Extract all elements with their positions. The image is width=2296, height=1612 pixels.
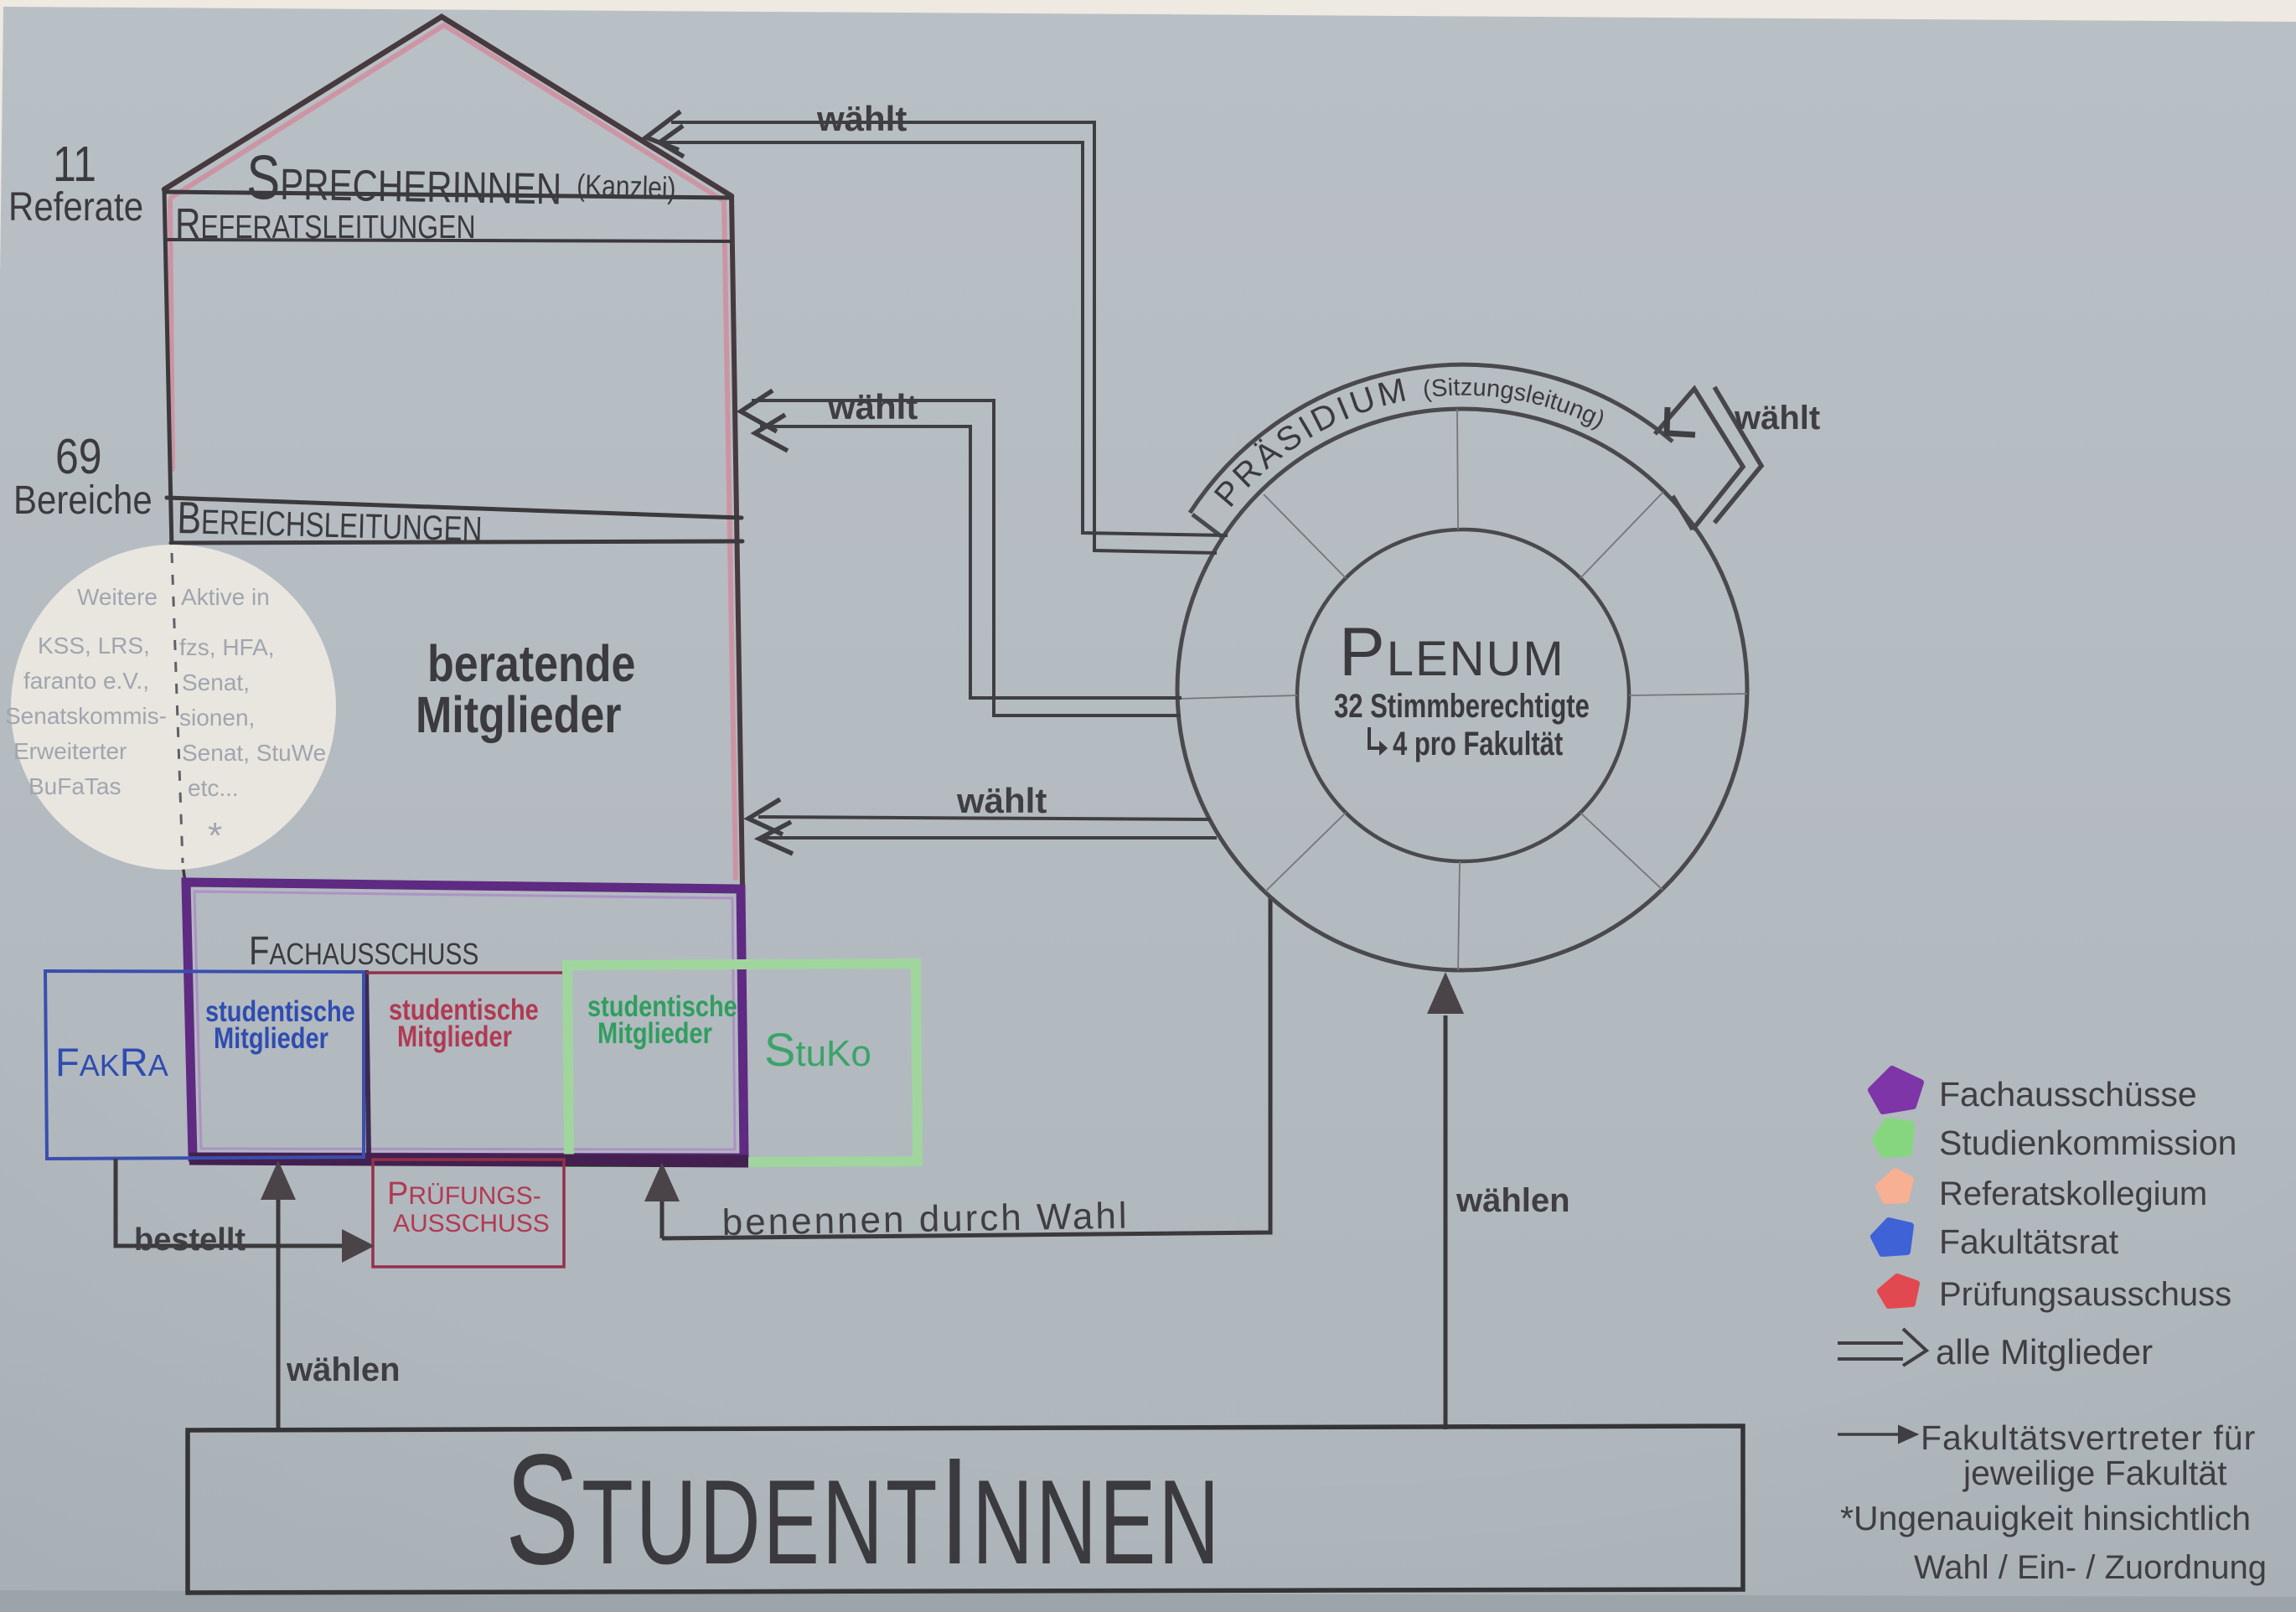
svg-text:fzs, HFA,: fzs, HFA, bbox=[179, 634, 275, 660]
svg-text:Studienkommission: Studienkommission bbox=[1939, 1124, 2237, 1162]
svg-text:Aktive in: Aktive in bbox=[181, 584, 270, 610]
svg-text:wählt: wählt bbox=[827, 387, 918, 426]
svg-text:Mitglieder: Mitglieder bbox=[397, 1020, 512, 1052]
svg-text:Weitere: Weitere bbox=[77, 584, 158, 610]
svg-text:Fakultätsrat: Fakultätsrat bbox=[1939, 1222, 2119, 1261]
svg-text:wählen: wählen bbox=[1456, 1182, 1570, 1219]
svg-text:BuFaTas: BuFaTas bbox=[28, 773, 122, 799]
svg-text:wählen: wählen bbox=[286, 1351, 401, 1388]
svg-text:AUSSCHUSS: AUSSCHUSS bbox=[393, 1210, 550, 1237]
svg-text:PRÜFUNGS-: PRÜFUNGS- bbox=[387, 1176, 541, 1212]
svg-text:Erweiterter: Erweiterter bbox=[13, 738, 127, 764]
svg-text:Prüfungsausschuss: Prüfungsausschuss bbox=[1939, 1276, 2231, 1313]
svg-text:Referate: Referate bbox=[8, 183, 143, 229]
svg-text:Mitglieder: Mitglieder bbox=[214, 1021, 328, 1054]
svg-text:wählt: wählt bbox=[1734, 400, 1820, 437]
svg-text:faranto e.V.,: faranto e.V., bbox=[23, 668, 149, 694]
svg-text:beratende: beratende bbox=[427, 636, 635, 693]
svg-text:*: * bbox=[208, 815, 222, 856]
svg-text:etc...: etc... bbox=[188, 775, 239, 801]
svg-text:Senat,: Senat, bbox=[182, 669, 250, 695]
svg-text:32 Stimmberechtigte: 32 Stimmberechtigte bbox=[1334, 687, 1590, 725]
svg-text:jeweilige Fakultät: jeweilige Fakultät bbox=[1962, 1454, 2227, 1492]
svg-text:alle Mitglieder: alle Mitglieder bbox=[1936, 1332, 2153, 1372]
svg-text:KSS, LRS,: KSS, LRS, bbox=[38, 633, 150, 659]
svg-text:Wahl / Ein- / Zuordnung: Wahl / Ein- / Zuordnung bbox=[1914, 1549, 2267, 1586]
svg-text:*Ungenauigkeit hinsichtlich: *Ungenauigkeit hinsichtlich bbox=[1840, 1499, 2251, 1537]
svg-text:wählt: wählt bbox=[816, 99, 907, 138]
svg-text:bestellt: bestellt bbox=[134, 1222, 246, 1258]
svg-text:benennen durch Wahl: benennen durch Wahl bbox=[721, 1196, 1130, 1243]
svg-text:Bereiche: Bereiche bbox=[13, 477, 153, 522]
svg-text:Senatskommis-: Senatskommis- bbox=[5, 703, 167, 729]
svg-text:Mitglieder: Mitglieder bbox=[597, 1016, 712, 1049]
svg-text:Mitglieder: Mitglieder bbox=[416, 687, 622, 744]
svg-text:wählt: wählt bbox=[956, 781, 1047, 820]
svg-text:(Kanzlei): (Kanzlei) bbox=[577, 169, 676, 206]
svg-text:69: 69 bbox=[55, 428, 102, 484]
svg-text:Referatskollegium: Referatskollegium bbox=[1939, 1175, 2207, 1212]
svg-text:Fakultätsvertreter für: Fakultätsvertreter für bbox=[1921, 1418, 2256, 1457]
svg-text:4 pro Fakultät: 4 pro Fakultät bbox=[1393, 725, 1563, 762]
svg-text:sionen,: sionen, bbox=[179, 705, 255, 731]
svg-text:Senat, StuWe: Senat, StuWe bbox=[182, 740, 326, 766]
svg-text:Fachausschüsse: Fachausschüsse bbox=[1939, 1075, 2197, 1113]
